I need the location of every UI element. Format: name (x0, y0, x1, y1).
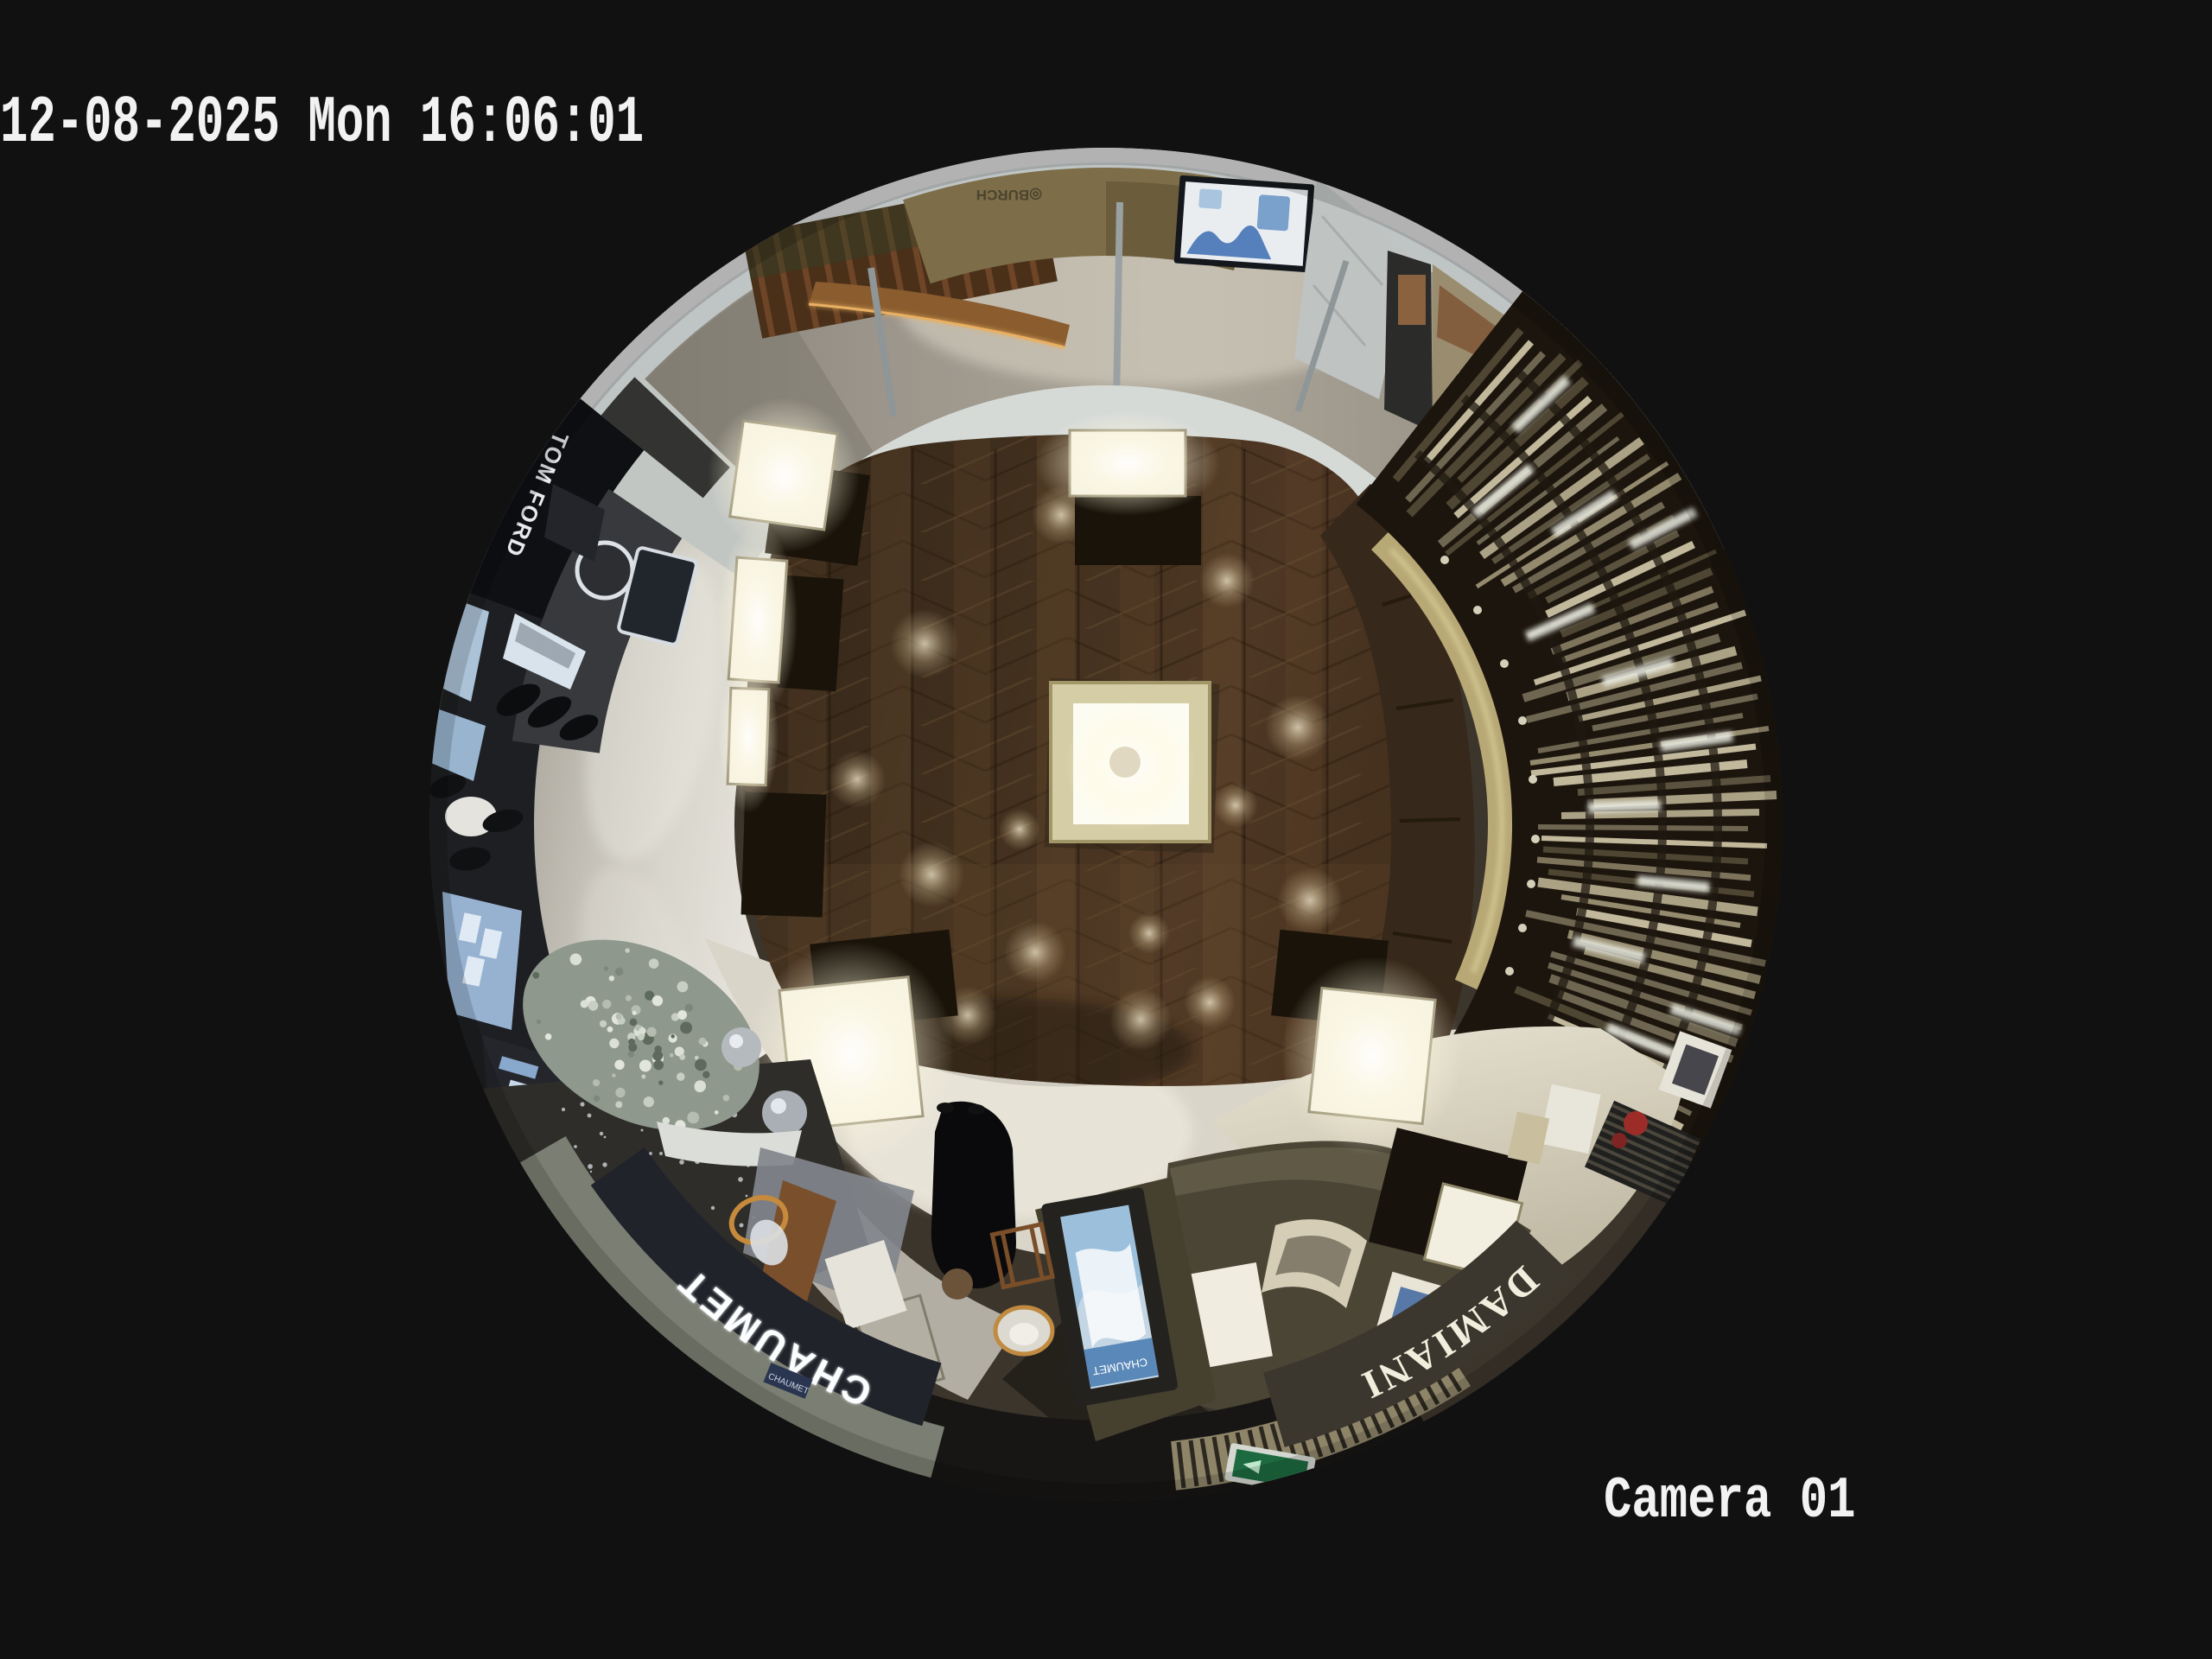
svg-text:◎BURCH: ◎BURCH (976, 187, 1042, 203)
svg-text:Camera 01: Camera 01 (1604, 1469, 1856, 1535)
svg-text:12-08-2025 Mon 16:06:01: 12-08-2025 Mon 16:06:01 (0, 86, 644, 161)
